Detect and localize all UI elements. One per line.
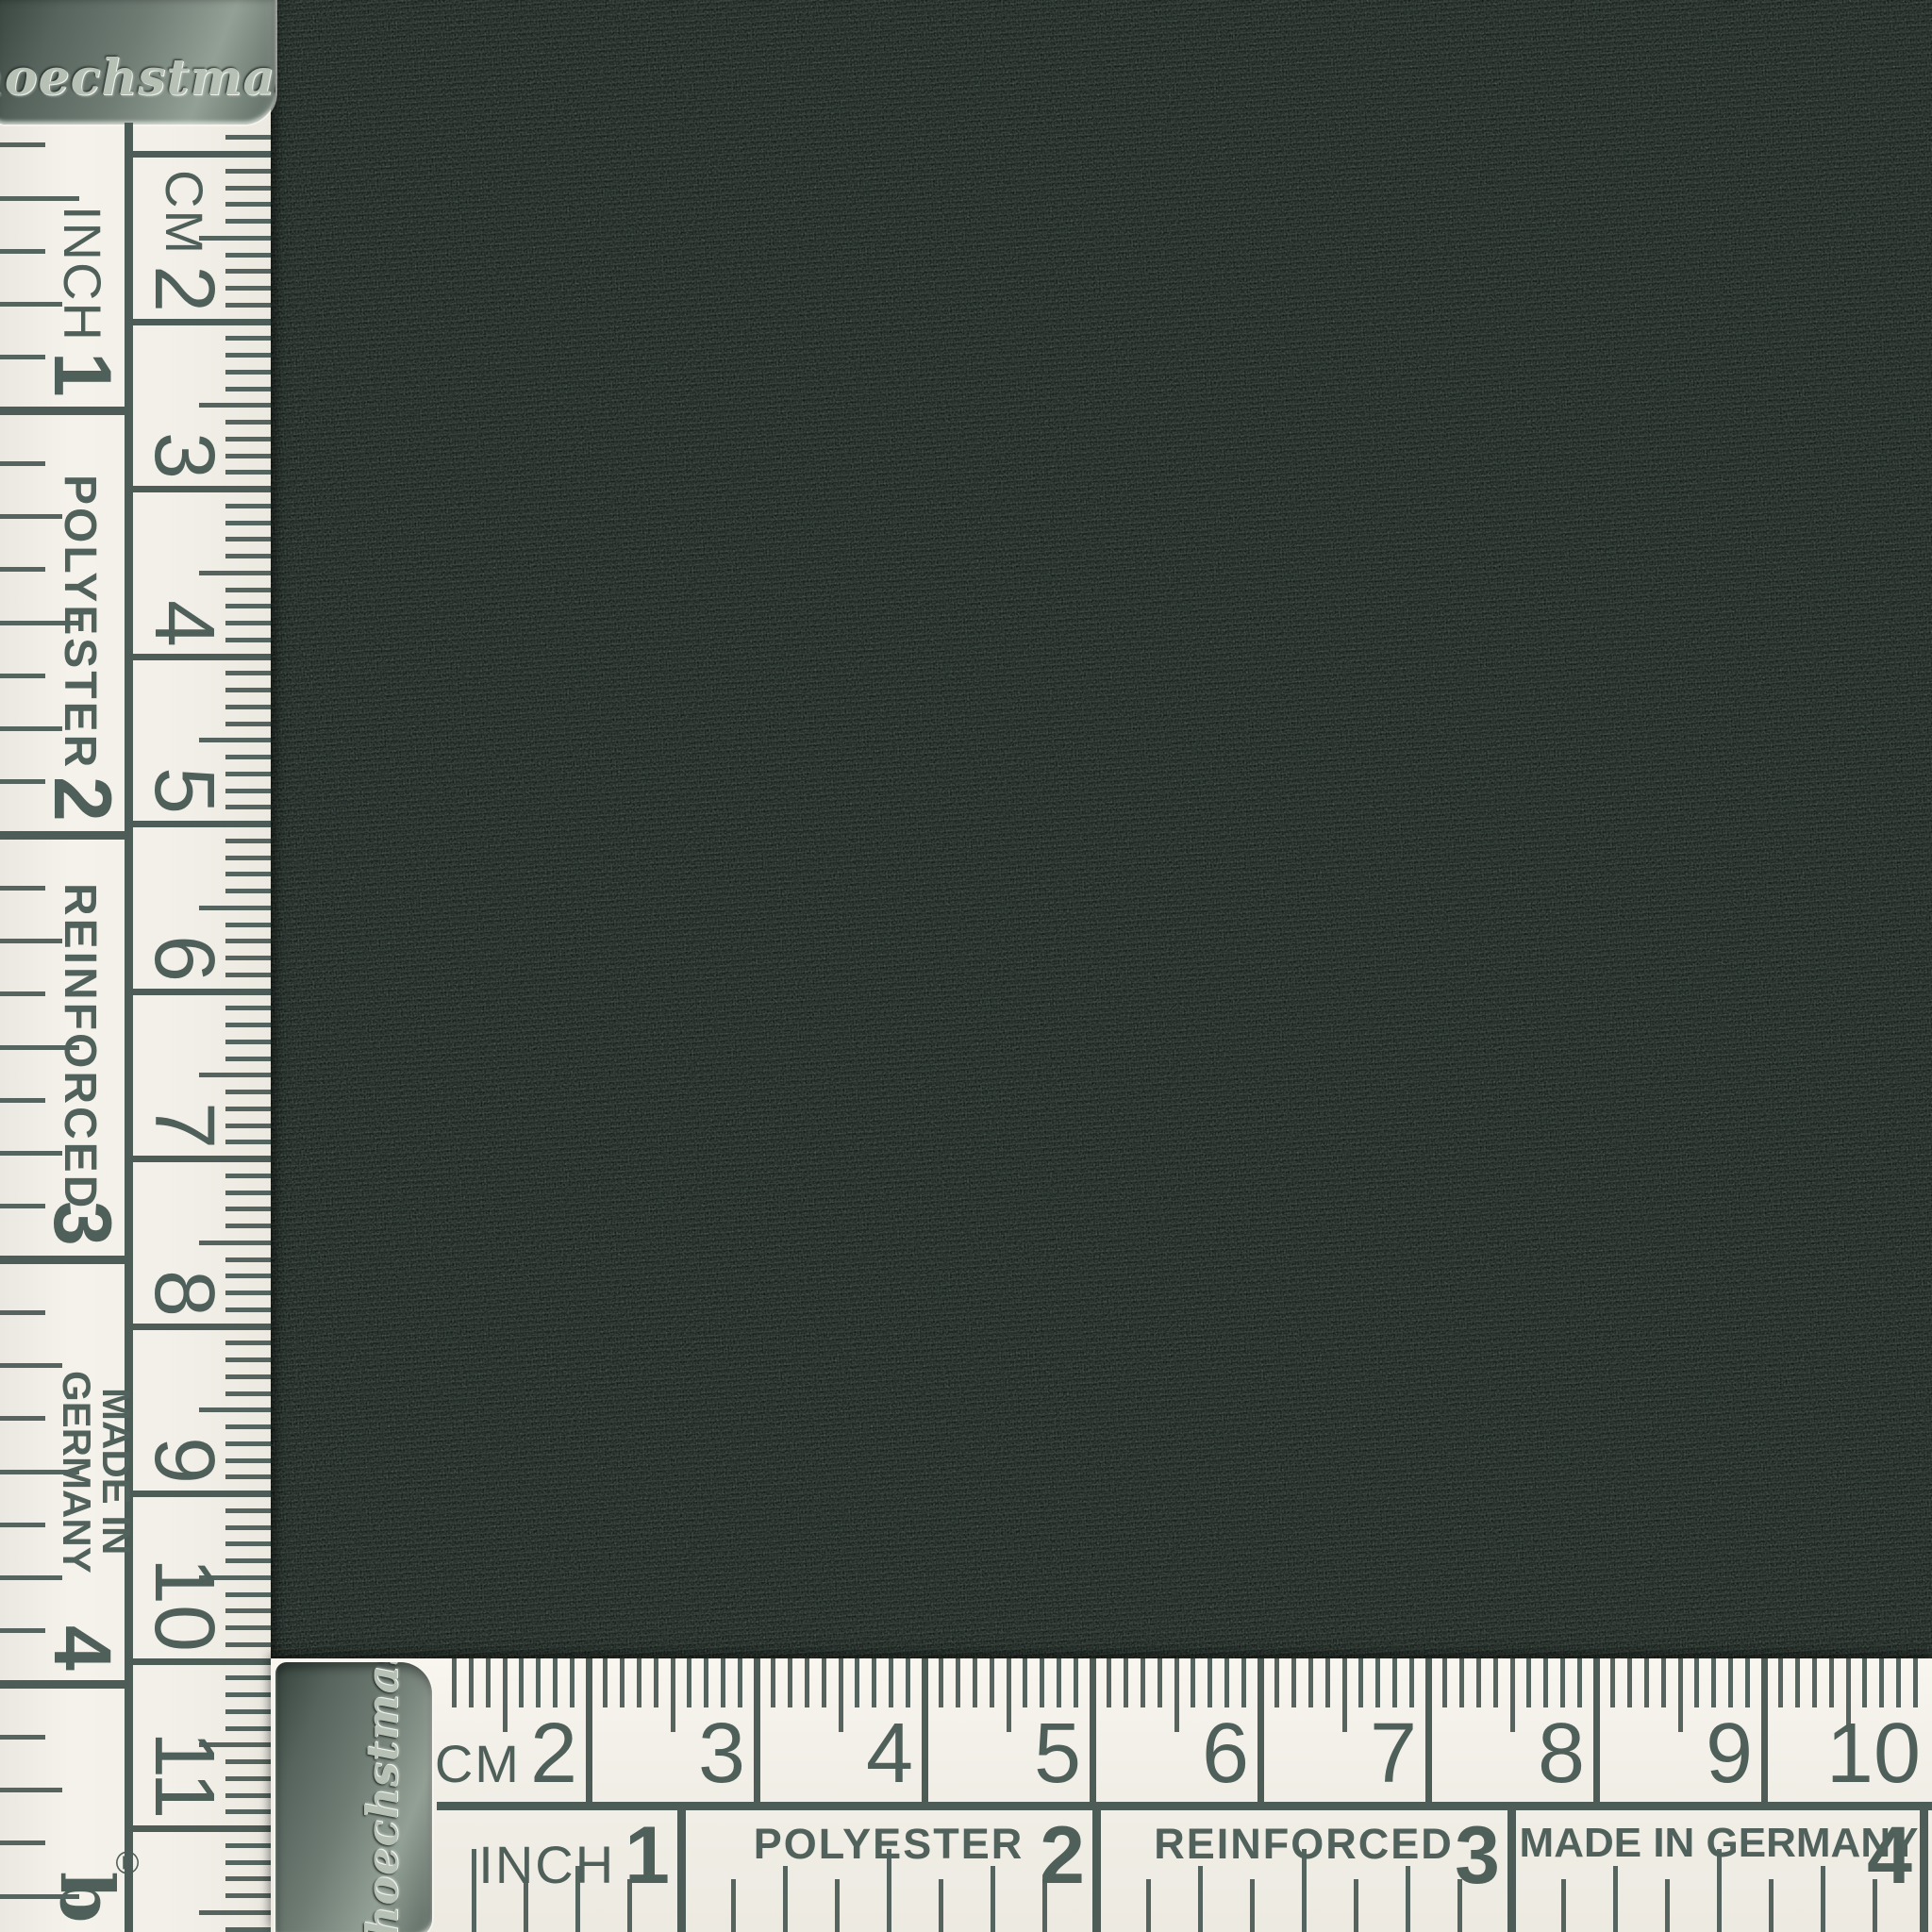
cm-tick-line	[125, 319, 271, 325]
inch-fraction-tick	[835, 1879, 840, 1932]
mm-tick	[1560, 1658, 1565, 1707]
mm-tick	[225, 1525, 271, 1530]
mm-half-cm-tick	[1007, 1658, 1011, 1732]
mm-tick	[1207, 1658, 1212, 1707]
tape-material-text: MADE IN GERMANY	[1520, 1823, 1919, 1864]
inch-fraction-tick	[0, 567, 45, 572]
mm-tick	[225, 1307, 271, 1312]
cm-tick-line	[125, 989, 271, 995]
mm-tick	[225, 772, 271, 776]
mm-tick	[1191, 1658, 1195, 1707]
cm-unit-label: CM	[155, 170, 214, 256]
mm-tick	[225, 923, 271, 927]
mm-tick	[225, 135, 271, 140]
inch-number: 2	[1040, 1815, 1085, 1896]
mm-tick	[225, 370, 271, 375]
mm-tick	[1795, 1658, 1800, 1707]
mm-tick	[486, 1658, 491, 1707]
inch-fraction-tick	[0, 1523, 45, 1527]
inch-tick-line	[1092, 1802, 1101, 1932]
inch-fraction-tick	[1146, 1879, 1151, 1932]
mm-tick	[1124, 1658, 1128, 1707]
mm-tick	[1023, 1658, 1027, 1707]
mm-tick	[1107, 1658, 1111, 1707]
inch-tick-line	[0, 1256, 133, 1264]
tape-material-text: POLYESTER	[754, 1823, 1024, 1865]
mm-tick	[620, 1658, 625, 1707]
mm-tick	[1812, 1658, 1817, 1707]
mm-tick	[771, 1658, 775, 1707]
inch-fraction-tick	[1354, 1879, 1358, 1932]
inch-fraction-tick	[1250, 1879, 1255, 1932]
mm-tick	[570, 1658, 575, 1707]
mm-tick	[225, 387, 271, 391]
brand-embossing-bottom: hoechstmass	[357, 1662, 413, 1932]
mm-tick	[225, 1809, 271, 1814]
mm-tick	[805, 1658, 809, 1707]
mm-tick	[1577, 1658, 1582, 1707]
inch-fraction-tick	[0, 886, 45, 891]
mm-tick	[225, 604, 271, 608]
mm-tick	[225, 1508, 271, 1513]
inch-fraction-tick	[1561, 1879, 1566, 1932]
mm-tick	[225, 269, 271, 274]
mm-tick	[738, 1658, 742, 1707]
mm-tick	[225, 1893, 271, 1898]
mm-tick	[225, 1860, 271, 1865]
inch-fraction-tick	[1821, 1866, 1825, 1932]
mm-tick	[225, 1107, 271, 1111]
mm-tick	[1241, 1658, 1246, 1707]
cm-number: 4	[142, 600, 226, 647]
mm-tick	[225, 336, 271, 341]
mm-tick	[225, 303, 271, 308]
mm-tick	[225, 1224, 271, 1228]
mm-tick	[225, 1843, 271, 1848]
mm-tick	[225, 454, 271, 458]
inch-tick-line	[1507, 1802, 1516, 1932]
inch-fraction-tick	[0, 1894, 79, 1899]
cm-number: 3	[142, 432, 226, 479]
mm-tick	[1291, 1658, 1296, 1707]
inch-fraction-tick	[731, 1879, 736, 1932]
mm-half-cm-tick	[199, 1910, 271, 1915]
inch-tick-line	[677, 1802, 686, 1932]
mm-tick	[1896, 1658, 1901, 1707]
inch-fraction-tick	[0, 1575, 62, 1580]
mm-tick	[1694, 1658, 1699, 1707]
mm-tick	[225, 1608, 271, 1613]
cm-number: CM2	[142, 170, 226, 312]
inch-fraction-tick	[0, 142, 45, 147]
mm-tick	[553, 1658, 558, 1707]
tape-material-text: MADE IN GERMANY	[57, 1302, 136, 1641]
mm-tick	[225, 537, 271, 541]
mm-tick	[1040, 1658, 1044, 1707]
mm-tick	[1728, 1658, 1733, 1707]
mm-tick	[225, 1257, 271, 1262]
mm-tick	[225, 1793, 271, 1798]
mm-tick	[1526, 1658, 1531, 1707]
cm-number: 7	[142, 1102, 226, 1149]
mm-tick	[225, 353, 271, 358]
inch-unit-label: INCH	[53, 206, 112, 342]
mm-tick	[1493, 1658, 1498, 1707]
mm-tick	[973, 1658, 977, 1707]
cm-tick-line	[125, 486, 271, 492]
mm-half-cm-tick	[1174, 1658, 1179, 1732]
mm-tick	[1711, 1658, 1716, 1707]
inch-fraction-tick	[0, 1363, 62, 1368]
mm-half-cm-tick	[199, 906, 271, 910]
mm-half-cm-tick	[839, 1658, 843, 1732]
mm-tick	[225, 286, 271, 291]
mm-tick	[1476, 1658, 1481, 1707]
mm-tick	[906, 1658, 910, 1707]
mm-tick	[225, 1040, 271, 1044]
mm-tick	[225, 202, 271, 207]
mm-tick	[225, 169, 271, 174]
cm-number: 10	[142, 1557, 226, 1652]
mm-tick	[225, 1726, 271, 1731]
mm-tick	[1459, 1658, 1464, 1707]
mm-tick	[225, 1541, 271, 1546]
mm-tick	[225, 1174, 271, 1178]
inch-fraction-tick	[0, 674, 45, 678]
cm-number: 7	[1370, 1711, 1417, 1796]
inch-fraction-tick	[1769, 1879, 1774, 1932]
metal-end-cap-bottom: hoechstmass	[275, 1662, 432, 1932]
mm-tick	[225, 253, 271, 258]
mm-tick	[225, 1592, 271, 1597]
mm-tick	[225, 1357, 271, 1362]
cm-number: 8	[1538, 1711, 1585, 1796]
cm-tick-line	[125, 151, 271, 158]
mm-half-cm-tick	[199, 403, 271, 408]
mm-tick	[225, 1642, 271, 1647]
mm-tick	[536, 1658, 541, 1707]
mm-tick	[225, 1424, 271, 1429]
cm-tick-line	[125, 1324, 271, 1330]
mm-tick	[225, 1291, 271, 1295]
inch-fraction-tick	[0, 1788, 62, 1792]
inch-tick-line	[0, 407, 133, 415]
mm-tick	[225, 1776, 271, 1781]
fabric-swatch	[0, 0, 1932, 1932]
inch-fraction-tick	[1198, 1866, 1203, 1932]
inch-fraction-tick	[0, 1151, 62, 1156]
mm-tick	[225, 420, 271, 425]
brand-embossing-top: hoechstmass	[0, 49, 275, 107]
mm-half-cm-tick	[199, 1407, 271, 1412]
mm-tick	[225, 1759, 271, 1764]
mm-tick	[1141, 1658, 1145, 1707]
mm-tick	[1325, 1658, 1330, 1707]
mm-tick	[225, 504, 271, 508]
vertical-ruler: hoechstmass b ® CM234567891011INCH1234PO…	[0, 0, 271, 1932]
mm-tick	[687, 1658, 691, 1707]
mm-tick	[225, 939, 271, 943]
mm-tick	[788, 1658, 792, 1707]
inch-fraction-tick	[0, 1735, 45, 1740]
mm-half-cm-tick	[199, 1073, 271, 1077]
horizontal-ruler: hoechstmass CM2345678910INCH1234POLYESTE…	[271, 1658, 1932, 1932]
inch-fraction-tick	[783, 1866, 788, 1932]
mm-half-cm-tick	[1678, 1658, 1683, 1732]
mm-tick	[225, 755, 271, 759]
mm-tick	[889, 1658, 893, 1707]
mm-half-cm-tick	[1342, 1658, 1347, 1732]
mm-tick	[1442, 1658, 1447, 1707]
mm-tick	[519, 1658, 524, 1707]
mm-tick	[1862, 1658, 1867, 1707]
inch-fraction-tick	[0, 726, 62, 731]
mm-half-cm-tick	[671, 1658, 675, 1732]
mm-tick	[1879, 1658, 1884, 1707]
inch-fraction-tick	[0, 249, 45, 254]
mm-tick	[855, 1658, 859, 1707]
mm-tick	[1358, 1658, 1363, 1707]
mm-tick	[225, 638, 271, 642]
mm-tick	[225, 588, 271, 592]
mm-tick	[1392, 1658, 1397, 1707]
cm-tick-line	[1761, 1658, 1768, 1810]
photo-fabric-with-rulers: { "scene": { "description": "Dark green-…	[0, 0, 1932, 1932]
mm-tick	[721, 1658, 725, 1707]
mm-tick	[225, 872, 271, 876]
inch-fraction-tick	[1406, 1866, 1410, 1932]
mm-tick	[225, 219, 271, 224]
mm-tick	[1644, 1658, 1649, 1707]
mm-tick	[872, 1658, 876, 1707]
mm-tick	[225, 839, 271, 843]
mm-tick	[1158, 1658, 1162, 1707]
mm-tick	[1543, 1658, 1548, 1707]
inch-fraction-tick	[1665, 1879, 1670, 1932]
inch-fraction-tick	[0, 461, 45, 466]
mm-tick	[225, 1140, 271, 1144]
inch-fraction-tick	[0, 1310, 45, 1315]
inch-fraction-tick	[0, 196, 79, 201]
inch-fraction-tick	[0, 1098, 45, 1103]
mm-tick	[1745, 1658, 1750, 1707]
mm-tick	[225, 973, 271, 977]
mm-tick	[225, 889, 271, 893]
mm-tick	[225, 1692, 271, 1697]
mm-tick	[1913, 1658, 1918, 1707]
mm-tick	[1274, 1658, 1279, 1707]
mm-tick	[225, 705, 271, 709]
mm-tick	[225, 1057, 271, 1061]
cm-tick-line	[754, 1658, 760, 1810]
inch-fraction-tick	[1613, 1866, 1618, 1932]
mm-tick	[225, 1090, 271, 1094]
inch-fraction-tick	[991, 1866, 995, 1932]
mm-tick	[225, 1207, 271, 1211]
mm-tick	[225, 1023, 271, 1027]
cm-tick-line	[1257, 1658, 1264, 1810]
mm-tick	[225, 554, 271, 558]
mm-tick	[225, 1006, 271, 1010]
mm-tick	[225, 688, 271, 692]
cm-number: 6	[142, 935, 226, 982]
mm-tick	[225, 722, 271, 726]
inch-number: INCH1	[42, 206, 123, 397]
tape-material-text: REINFORCED	[1154, 1823, 1454, 1865]
cm-tick-line	[922, 1658, 928, 1810]
cm-number: CM2	[435, 1711, 577, 1796]
mm-tick	[225, 1391, 271, 1396]
inch-tick-line	[1920, 1802, 1928, 1932]
mm-tick	[1308, 1658, 1313, 1707]
cm-number: 6	[1202, 1711, 1249, 1796]
cm-number: 3	[698, 1711, 745, 1796]
mm-half-cm-tick	[199, 571, 271, 575]
mm-tick	[990, 1658, 994, 1707]
cm-tick-line	[586, 1658, 592, 1810]
inch-unit-label: INCH	[478, 1835, 615, 1894]
mm-tick	[225, 1474, 271, 1479]
mm-tick	[225, 1558, 271, 1563]
mm-tick	[1057, 1658, 1061, 1707]
mm-tick	[939, 1658, 943, 1707]
inch-fraction-tick	[0, 939, 62, 943]
mm-tick	[654, 1658, 658, 1707]
cm-unit-label: CM	[435, 1734, 521, 1793]
mm-tick	[1224, 1658, 1229, 1707]
mm-tick	[225, 856, 271, 860]
cm-number: 9	[1706, 1711, 1753, 1796]
inch-fraction-tick	[472, 1849, 476, 1932]
mm-tick	[822, 1658, 826, 1707]
inch-number: 3	[1455, 1815, 1500, 1896]
mm-tick	[225, 621, 271, 625]
mm-tick	[1409, 1658, 1414, 1707]
mm-tick	[1778, 1658, 1783, 1707]
mm-half-cm-tick	[199, 1241, 271, 1245]
mm-tick	[956, 1658, 960, 1707]
inch-fraction-tick	[0, 1416, 45, 1421]
cm-tick-line	[1593, 1658, 1600, 1810]
mm-tick	[637, 1658, 641, 1707]
mm-tick	[225, 1709, 271, 1714]
tape-material-text: POLYESTER	[57, 453, 102, 792]
mm-tick	[225, 1458, 271, 1463]
cm-tick-line	[125, 1491, 271, 1497]
mm-tick	[225, 1341, 271, 1345]
mm-tick	[704, 1658, 708, 1707]
mm-tick	[1074, 1658, 1078, 1707]
cm-tick-line	[125, 1156, 271, 1162]
cm-tick-line	[125, 1825, 271, 1832]
inch-tick-line	[0, 831, 133, 840]
mm-tick	[225, 1274, 271, 1278]
cm-number: 11	[142, 1731, 226, 1819]
mm-tick	[225, 1675, 271, 1680]
cm-number: 10	[1826, 1711, 1921, 1796]
mm-tick	[225, 1876, 271, 1881]
mm-tick	[225, 1374, 271, 1379]
mm-tick	[225, 1927, 271, 1932]
inch-tick-line	[0, 1680, 133, 1689]
inch-fraction-tick	[0, 1840, 45, 1845]
inch-fraction-tick	[0, 991, 45, 996]
mm-tick	[225, 805, 271, 809]
metal-end-cap-top: hoechstmass	[0, 0, 275, 125]
cm-inch-divider-line	[437, 1802, 1932, 1810]
fabric-grain-texture	[0, 0, 1932, 1932]
mm-tick	[225, 521, 271, 525]
cm-number: 4	[866, 1711, 913, 1796]
mm-tick	[225, 470, 271, 475]
mm-tick	[225, 437, 271, 441]
mm-tick	[1610, 1658, 1615, 1707]
cm-number: 5	[1034, 1711, 1081, 1796]
mm-tick	[225, 1441, 271, 1446]
tape-material-text: REINFORCED	[57, 877, 102, 1217]
cm-tick-line	[1425, 1658, 1432, 1810]
cm-number: 8	[142, 1270, 226, 1317]
mm-tick	[469, 1658, 474, 1707]
cm-number: 5	[142, 767, 226, 814]
mm-tick	[225, 789, 271, 793]
inch-fraction-tick	[939, 1879, 943, 1932]
mm-tick	[225, 671, 271, 675]
mm-half-cm-tick	[199, 738, 271, 742]
cm-tick-line	[1090, 1658, 1096, 1810]
cm-tick-line	[125, 1658, 271, 1665]
mm-tick	[1627, 1658, 1632, 1707]
mm-tick	[225, 1625, 271, 1630]
mm-tick	[452, 1658, 457, 1707]
mm-tick	[225, 186, 271, 191]
mm-tick	[225, 1191, 271, 1195]
inch-number: INCH1	[478, 1815, 670, 1896]
mm-tick	[1829, 1658, 1834, 1707]
cm-number: 9	[142, 1437, 226, 1484]
mm-tick	[1661, 1658, 1666, 1707]
mm-tick	[1375, 1658, 1380, 1707]
cm-tick-line	[125, 821, 271, 827]
cm-tick-line	[125, 654, 271, 660]
mm-tick	[603, 1658, 608, 1707]
mm-tick	[225, 956, 271, 960]
mm-half-cm-tick	[1510, 1658, 1515, 1732]
inch-fraction-tick	[0, 514, 62, 519]
mm-tick	[225, 1124, 271, 1128]
